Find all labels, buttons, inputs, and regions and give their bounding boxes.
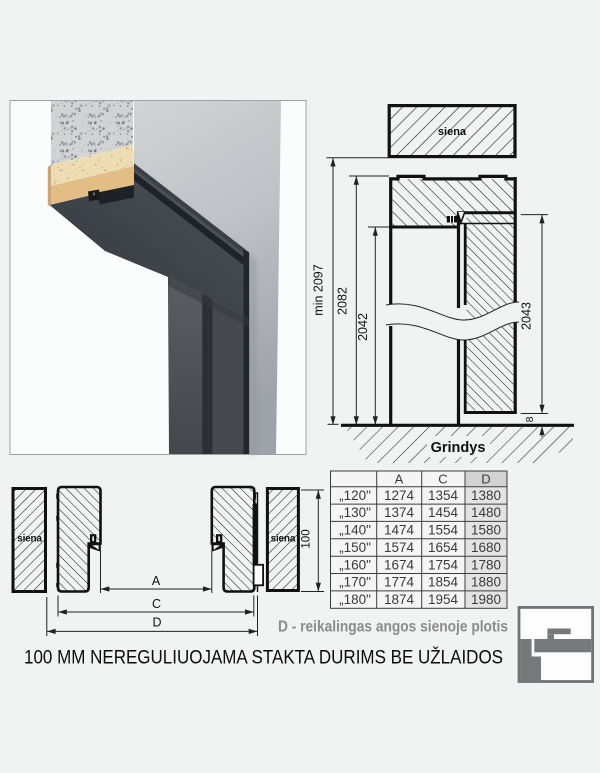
svg-text:A: A: [395, 472, 404, 487]
svg-text:„160": „160": [339, 557, 371, 572]
svg-text:1354: 1354: [428, 488, 459, 503]
svg-text:1654: 1654: [428, 540, 459, 555]
svg-text:D - reikalingas angos sienoje: D - reikalingas angos sienoje plotis: [278, 619, 508, 636]
svg-text:1880: 1880: [471, 575, 501, 590]
svg-text:siena: siena: [271, 534, 296, 545]
svg-text:„170": „170": [339, 575, 371, 590]
svg-text:„150": „150": [339, 540, 371, 555]
svg-text:D: D: [481, 472, 490, 487]
svg-text:1574: 1574: [384, 540, 415, 555]
svg-text:1754: 1754: [428, 557, 459, 572]
svg-text:1480: 1480: [471, 505, 501, 520]
svg-text:„120": „120": [339, 488, 371, 503]
svg-text:1854: 1854: [428, 575, 459, 590]
svg-text:D: D: [152, 616, 161, 630]
svg-text:min 2097: min 2097: [312, 264, 326, 315]
svg-text:1474: 1474: [384, 523, 415, 538]
svg-text:A: A: [152, 574, 161, 588]
svg-text:1554: 1554: [428, 523, 459, 538]
svg-text:„130": „130": [339, 505, 371, 520]
svg-text:1980: 1980: [471, 592, 501, 607]
svg-text:1780: 1780: [471, 557, 501, 572]
svg-text:1380: 1380: [471, 488, 501, 503]
svg-text:1954: 1954: [428, 592, 459, 607]
svg-text:1374: 1374: [384, 505, 415, 520]
svg-text:1774: 1774: [384, 575, 415, 590]
svg-text:siena: siena: [17, 534, 42, 545]
svg-text:8: 8: [524, 416, 536, 422]
svg-text:2082: 2082: [336, 287, 350, 315]
svg-text:100 MM NEREGULIUOJAMA STAKTA D: 100 MM NEREGULIUOJAMA STAKTA DURIMS BE U…: [24, 646, 503, 669]
svg-text:Grindys: Grindys: [431, 440, 486, 456]
svg-text:„180": „180": [339, 592, 371, 607]
svg-text:1274: 1274: [384, 488, 415, 503]
svg-text:100: 100: [301, 529, 313, 548]
svg-text:C: C: [438, 472, 447, 487]
svg-text:„140": „140": [339, 523, 371, 538]
svg-text:2042: 2042: [356, 313, 370, 341]
svg-text:1454: 1454: [428, 505, 459, 520]
svg-text:1580: 1580: [471, 523, 501, 538]
svg-text:C: C: [152, 597, 161, 611]
svg-text:1680: 1680: [471, 540, 501, 555]
svg-text:siena: siena: [438, 126, 467, 138]
svg-text:1874: 1874: [384, 592, 415, 607]
svg-text:1674: 1674: [384, 557, 415, 572]
svg-text:2043: 2043: [520, 302, 534, 330]
